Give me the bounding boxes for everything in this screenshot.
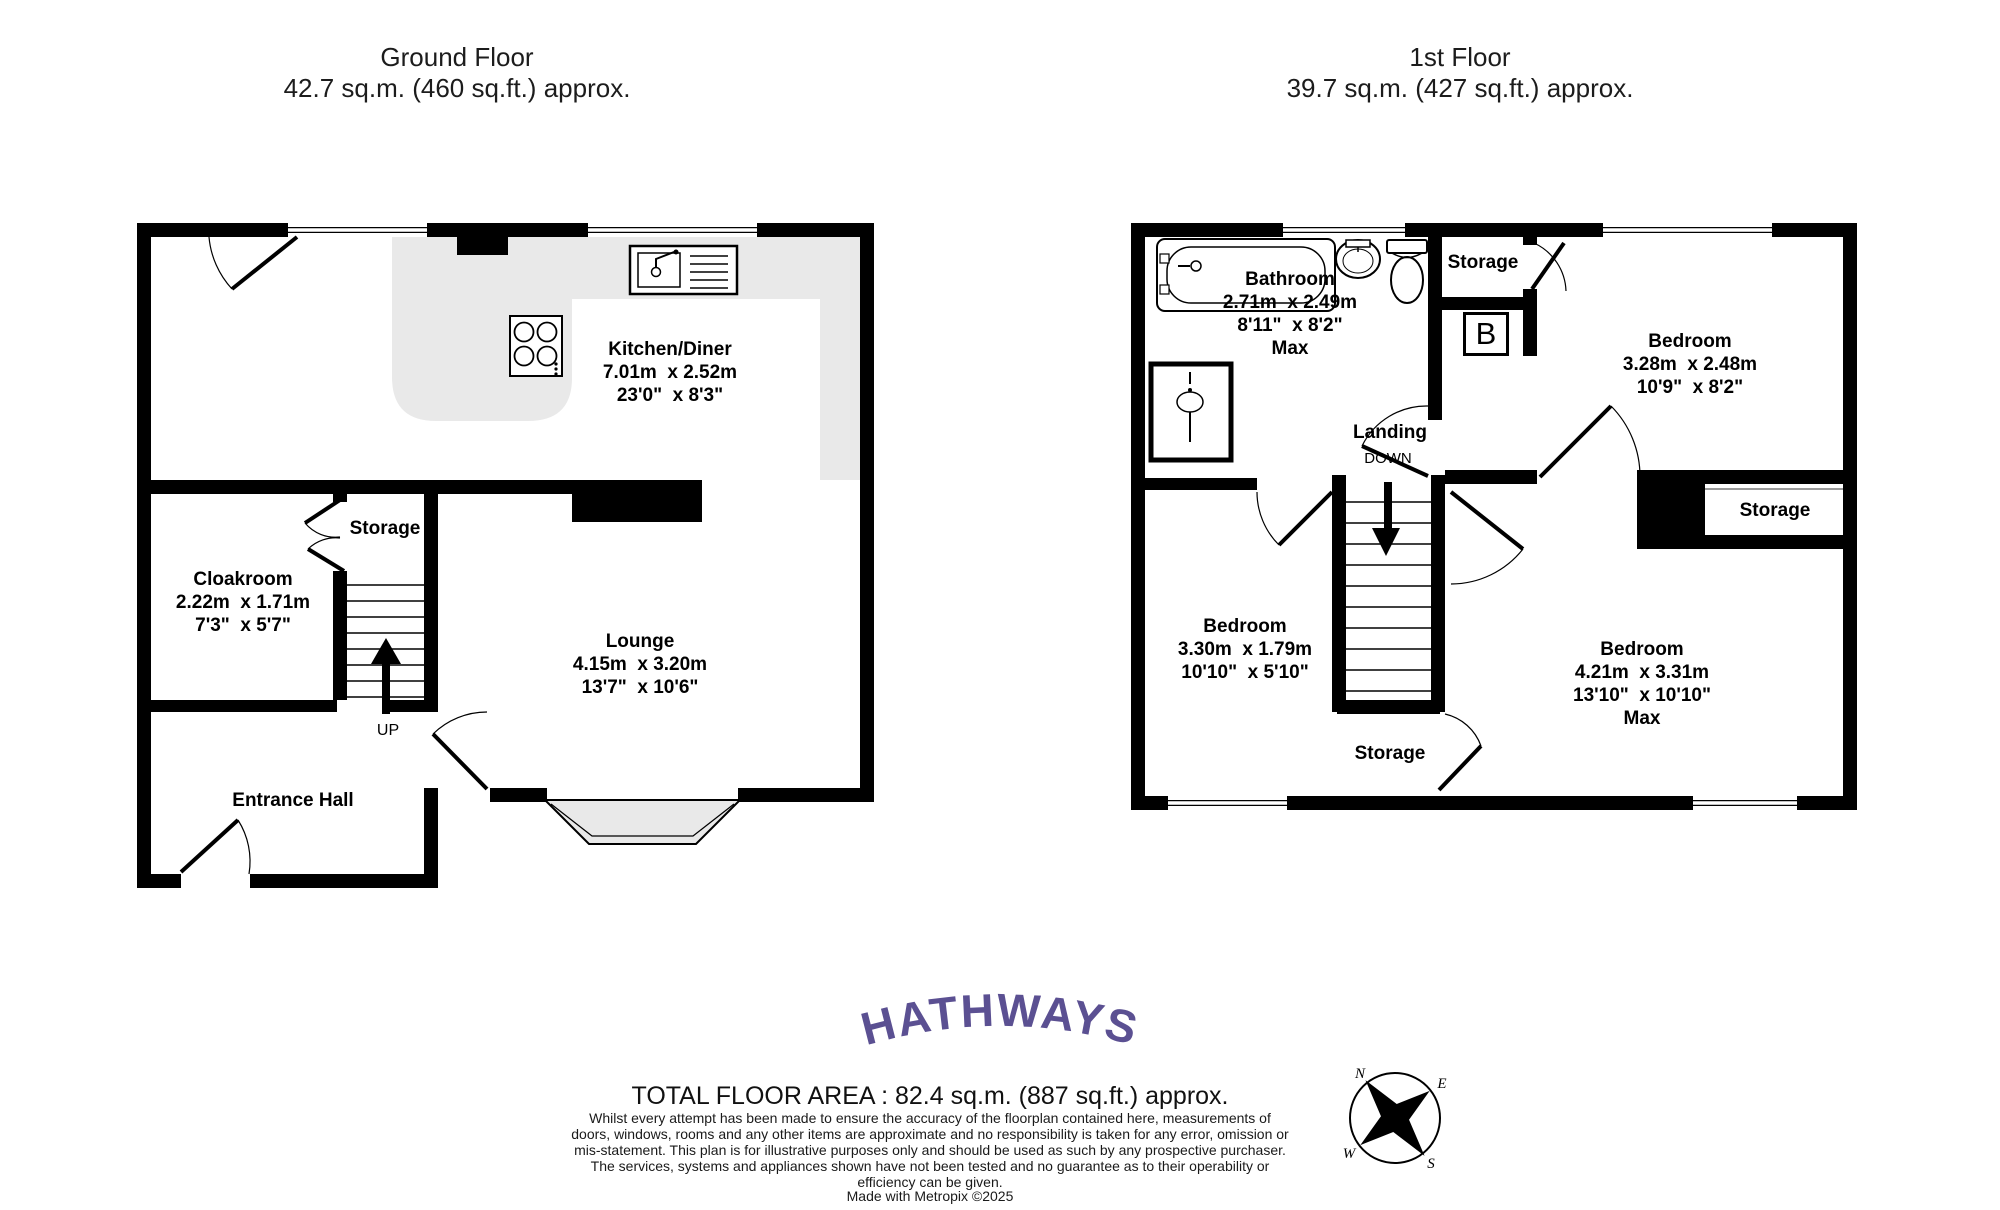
room-metric: 3.30m x 1.79m	[1178, 638, 1312, 661]
room-imperial: 8'11" x 8'2"	[1223, 314, 1357, 337]
compass-s: S	[1427, 1156, 1435, 1172]
room-imperial: 10'10" x 5'10"	[1178, 661, 1312, 684]
hob-icon	[510, 316, 562, 376]
room-name: Bedroom	[1178, 615, 1312, 638]
bedroom-left-label: Bedroom 3.30m x 1.79m 10'10" x 5'10"	[1178, 615, 1312, 684]
disclaimer-text: Whilst every attempt has been made to en…	[570, 1110, 1290, 1190]
room-metric: 4.21m x 3.31m	[1573, 661, 1711, 684]
bedroom-bottom-right-label: Bedroom 4.21m x 3.31m 13'10" x 10'10" Ma…	[1573, 638, 1711, 730]
kitchen-diner-label: Kitchen/Diner 7.01m x 2.52m 23'0" x 8'3"	[603, 338, 737, 407]
boiler-box: B	[1463, 312, 1509, 356]
ground-floor-title-area: 42.7 sq.m. (460 sq.ft.) approx.	[284, 73, 631, 104]
room-imperial: 10'9" x 8'2"	[1623, 376, 1757, 399]
room-name: Bathroom	[1223, 268, 1357, 291]
up-label: UP	[377, 722, 399, 740]
room-metric: 4.15m x 3.20m	[573, 653, 707, 676]
ground-floor-title-name: Ground Floor	[284, 42, 631, 73]
total-floor-area: TOTAL FLOOR AREA : 82.4 sq.m. (887 sq.ft…	[632, 1082, 1229, 1111]
room-name: Cloakroom	[176, 568, 310, 591]
bay-window	[541, 788, 744, 844]
room-name: Lounge	[573, 630, 707, 653]
compass-w: W	[1343, 1146, 1357, 1162]
bedroom-top-right-label: Bedroom 3.28m x 2.48m 10'9" x 8'2"	[1623, 330, 1757, 399]
first-floor-title-name: 1st Floor	[1287, 42, 1634, 73]
cloakroom-label: Cloakroom 2.22m x 1.71m 7'3" x 5'7"	[176, 568, 310, 637]
ff-storage-bottom-label: Storage	[1355, 743, 1426, 765]
room-imperial: 13'7" x 10'6"	[573, 676, 707, 699]
shower-unit-icon	[1151, 364, 1231, 460]
ff-storage-top-label: Storage	[1448, 252, 1519, 274]
ground-floor-title: Ground Floor 42.7 sq.m. (460 sq.ft.) app…	[284, 42, 631, 104]
room-name: Bedroom	[1573, 638, 1711, 661]
room-metric: 2.71m x 2.49m	[1223, 291, 1357, 314]
room-imperial: 7'3" x 5'7"	[176, 614, 310, 637]
room-qualifier: Max	[1223, 337, 1357, 360]
first-floor-title-area: 39.7 sq.m. (427 sq.ft.) approx.	[1287, 73, 1634, 104]
logo-text: HATHWAYS	[856, 984, 1145, 1055]
bathroom-label: Bathroom 2.71m x 2.49m 8'11" x 8'2" Max	[1223, 268, 1357, 360]
lounge-label: Lounge 4.15m x 3.20m 13'7" x 10'6"	[573, 630, 707, 699]
room-metric: 7.01m x 2.52m	[603, 361, 737, 384]
room-metric: 2.22m x 1.71m	[176, 591, 310, 614]
room-imperial: 13'10" x 10'10"	[1573, 684, 1711, 707]
compass-n: N	[1354, 1066, 1366, 1082]
floorplan-page: HATHWAYS N E S W Ground Floor 42.7 sq.m.…	[0, 0, 2000, 1210]
ff-storage-right-label: Storage	[1740, 500, 1811, 522]
compass-rose: N E S W	[1331, 1053, 1459, 1183]
toilet-icon	[1387, 240, 1427, 303]
room-metric: 3.28m x 2.48m	[1623, 353, 1757, 376]
room-qualifier: Max	[1573, 707, 1711, 730]
down-arrow-icon	[1372, 482, 1400, 556]
ground-floor-plan	[137, 223, 874, 888]
svg-text:HATHWAYS: HATHWAYS	[856, 984, 1145, 1055]
room-name: Kitchen/Diner	[603, 338, 737, 361]
room-name: Bedroom	[1623, 330, 1757, 353]
room-imperial: 23'0" x 8'3"	[603, 384, 737, 407]
landing-label: Landing	[1353, 422, 1427, 444]
hathways-logo: HATHWAYS	[856, 984, 1145, 1055]
gf-storage-label: Storage	[350, 518, 421, 540]
down-label: DOWN	[1364, 450, 1412, 467]
first-floor-title: 1st Floor 39.7 sq.m. (427 sq.ft.) approx…	[1287, 42, 1634, 104]
credit-text: Made with Metropix ©2025	[847, 1188, 1014, 1204]
kitchen-sink-icon	[630, 246, 737, 294]
entrance-hall-label: Entrance Hall	[232, 790, 353, 812]
compass-e: E	[1436, 1076, 1446, 1092]
